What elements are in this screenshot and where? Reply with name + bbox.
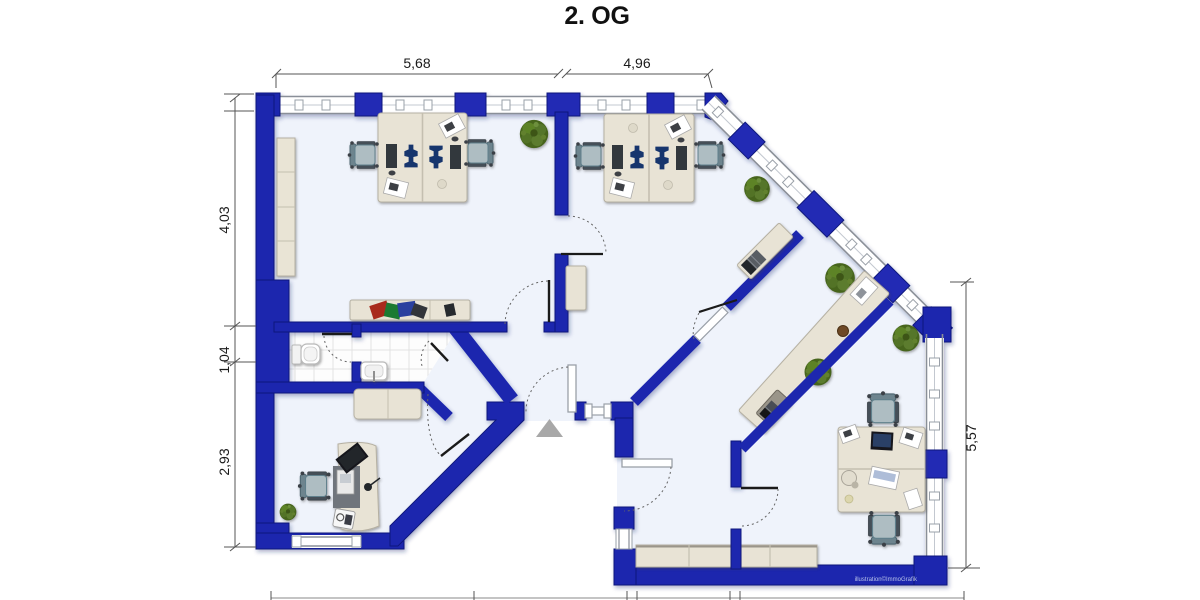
- svg-text:5,68: 5,68: [403, 55, 430, 71]
- svg-text:2,93: 2,93: [216, 448, 232, 475]
- svg-text:4,96: 4,96: [623, 55, 650, 71]
- svg-text:illustration©ImmoGrafik: illustration©ImmoGrafik: [855, 576, 918, 583]
- svg-text:1,04: 1,04: [216, 346, 232, 373]
- svg-text:4,03: 4,03: [216, 206, 232, 233]
- svg-text:5,57: 5,57: [963, 424, 979, 451]
- svg-text:2. OG: 2. OG: [564, 2, 629, 30]
